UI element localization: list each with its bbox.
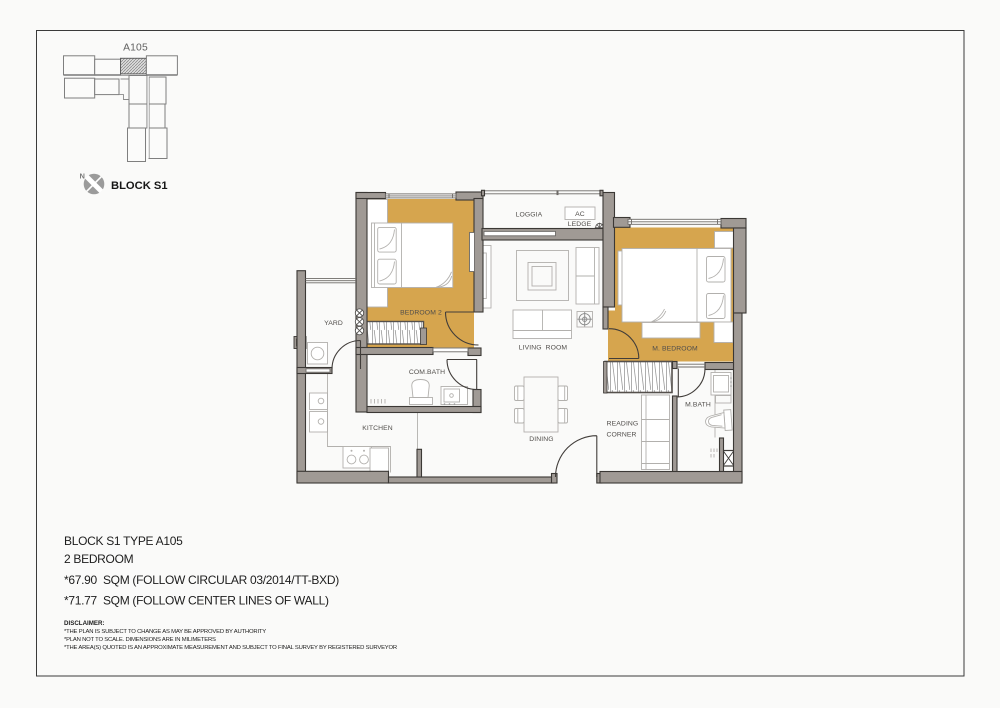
svg-text:M.BATH: M.BATH xyxy=(685,401,711,408)
svg-text:LOGGIA: LOGGIA xyxy=(516,212,543,219)
svg-text:N: N xyxy=(80,172,85,181)
svg-text:YARD: YARD xyxy=(324,320,343,327)
svg-text:KITCHEN: KITCHEN xyxy=(362,425,393,432)
svg-text:M. BEDROOM: M. BEDROOM xyxy=(652,346,698,353)
svg-text:*THE AREA(S) QUOTED IS AN APPR: *THE AREA(S) QUOTED IS AN APPROXIMATE ME… xyxy=(64,645,397,651)
svg-text:COM.BATH: COM.BATH xyxy=(409,369,445,376)
svg-text:2 BEDROOM: 2 BEDROOM xyxy=(64,552,134,566)
svg-text:READING: READING xyxy=(607,421,639,428)
svg-text:DINING: DINING xyxy=(529,436,553,443)
svg-text:BEDROOM 2: BEDROOM 2 xyxy=(400,310,442,317)
svg-text:*THE PLAN IS SUBJECT TO CHANGE: *THE PLAN IS SUBJECT TO CHANGE AS MAY BE… xyxy=(64,629,266,635)
svg-text:LEDGE: LEDGE xyxy=(568,221,592,228)
svg-text:A105: A105 xyxy=(123,43,148,54)
svg-text:CORNER: CORNER xyxy=(606,431,636,438)
svg-text:*PLAN NOT TO SCALE. DIMENSIONS: *PLAN NOT TO SCALE. DIMENSIONS ARE IN MI… xyxy=(64,637,216,643)
svg-text:BLOCK S1: BLOCK S1 xyxy=(111,180,168,192)
svg-text:*67.90 SQM (FOLLOW CIRCULAR 0: *67.90 SQM (FOLLOW CIRCULAR 03/2014/TT-B… xyxy=(64,573,339,587)
svg-text:BLOCK S1 TYPE A105: BLOCK S1 TYPE A105 xyxy=(64,534,183,548)
svg-text:AC: AC xyxy=(575,211,585,218)
svg-text:DISCLAIMER:: DISCLAIMER: xyxy=(64,620,105,627)
svg-text:*71.77 SQM (FOLLOW CENTER LIN: *71.77 SQM (FOLLOW CENTER LINES OF WALL) xyxy=(64,594,329,608)
svg-text:LIVING ROOM: LIVING ROOM xyxy=(519,345,568,352)
